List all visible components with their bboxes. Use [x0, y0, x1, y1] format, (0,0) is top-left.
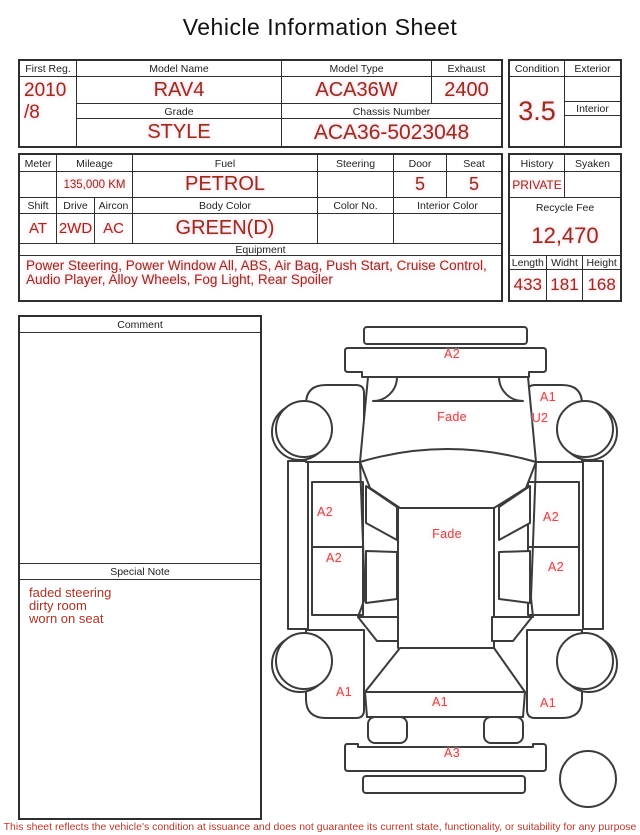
history-box: History Syaken PRIVATE Recycle Fee 12,47…: [508, 153, 622, 302]
body-color-label: Body Color: [133, 198, 318, 214]
comment-value: [20, 333, 260, 563]
history-value: PRIVATE: [510, 172, 565, 198]
exterior-label: Exterior: [565, 61, 620, 77]
tailgate: [365, 692, 525, 717]
mileage-label: Mileage: [57, 155, 133, 172]
seat-value: 5: [447, 172, 501, 198]
drive-value: 2WD: [57, 214, 95, 244]
recycle-fee-label: Recycle Fee: [510, 198, 620, 216]
first-reg-value: 2010 /8: [20, 77, 77, 146]
right-taillight: [484, 717, 523, 743]
condition-box: Condition 3.5 Exterior Interior: [508, 59, 622, 148]
rear-left-wheel: [276, 633, 332, 689]
model-type-label: Model Type: [282, 61, 432, 77]
condition-value: 3.5: [510, 77, 565, 146]
right-doors: [528, 482, 579, 615]
grade-label: Grade: [77, 104, 282, 119]
chassis-number-label: Chassis Number: [282, 104, 501, 119]
first-reg-label: First Reg.: [20, 61, 77, 77]
left-sill: [288, 461, 308, 629]
comment-box: Comment Special Note faded steering dirt…: [18, 315, 262, 820]
front-bumper-strip: [364, 327, 527, 344]
special-note-value: faded steering dirty room worn on seat: [20, 580, 260, 818]
syaken-value: [565, 172, 620, 198]
right-sill: [583, 461, 603, 629]
exhaust-label: Exhaust: [432, 61, 501, 77]
page-title: Vehicle Information Sheet: [0, 14, 640, 41]
meter-value: [20, 172, 57, 198]
dimensions-grid: Length Widht Height 433 181 168: [510, 256, 620, 300]
width-label: Widht: [547, 256, 584, 270]
rear-bumper: [345, 744, 546, 771]
shift-label: Shift: [20, 198, 57, 214]
equipment-label: Equipment: [20, 244, 501, 256]
interior-value: [565, 116, 620, 146]
steering-value: [318, 172, 394, 198]
disclaimer-text: This sheet reflects the vehicle's condit…: [0, 821, 640, 833]
condition-label: Condition: [510, 61, 565, 77]
rear-glass: [365, 648, 525, 692]
fuel-label: Fuel: [133, 155, 318, 172]
width-value: 181: [547, 270, 584, 300]
shift-value: AT: [20, 214, 57, 244]
drive-label: Drive: [57, 198, 95, 214]
body-color-value: GREEN(D): [133, 214, 318, 244]
model-table: First Reg. 2010 /8 Model Name RAV4 Model…: [18, 59, 503, 148]
history-label: History: [510, 155, 565, 172]
length-label: Length: [510, 256, 547, 270]
front-left-wheel: [276, 401, 332, 457]
equipment-value: Power Steering, Power Window All, ABS, A…: [20, 256, 501, 300]
aircon-value: AC: [95, 214, 133, 244]
front-right-wheel: [557, 401, 613, 457]
length-value: 433: [510, 270, 547, 300]
interior-color-label: Interior Color: [394, 198, 501, 214]
comment-label: Comment: [20, 317, 260, 333]
color-no-label: Color No.: [318, 198, 394, 214]
height-value: 168: [583, 270, 620, 300]
chassis-number-value: ACA36-5023048: [282, 119, 501, 146]
left-taillight: [368, 717, 407, 743]
exhaust-value: 2400: [432, 77, 501, 104]
roof: [398, 508, 494, 648]
grade-value: STYLE: [77, 119, 282, 146]
rear-right-wheel: [557, 633, 613, 689]
fuel-value: PETROL: [133, 172, 318, 198]
vehicle-information-sheet: Vehicle Information Sheet First Reg. 201…: [0, 0, 640, 835]
interior-label: Interior: [565, 102, 620, 116]
steering-label: Steering: [318, 155, 394, 172]
aircon-label: Aircon: [95, 198, 133, 214]
car-diagram: [270, 315, 640, 810]
model-name-label: Model Name: [77, 61, 282, 77]
exterior-value: [565, 77, 620, 102]
model-type-value: ACA36W: [282, 77, 432, 104]
seat-label: Seat: [447, 155, 501, 172]
recycle-fee-value: 12,470: [510, 216, 620, 256]
front-bumper: [345, 348, 546, 377]
spec-table: Meter Mileage Fuel Steering Door Seat 13…: [18, 153, 503, 302]
door-label: Door: [394, 155, 447, 172]
special-note-label: Special Note: [20, 563, 260, 580]
rear-bumper-strip: [363, 776, 525, 793]
color-no-value: [318, 214, 394, 244]
syaken-label: Syaken: [565, 155, 620, 172]
mileage-value: 135,000 KM: [57, 172, 133, 198]
model-name-value: RAV4: [77, 77, 282, 104]
left-doors: [312, 482, 363, 615]
spare-wheel: [560, 751, 616, 807]
door-value: 5: [394, 172, 447, 198]
interior-color-value: [394, 214, 501, 244]
height-label: Height: [583, 256, 620, 270]
meter-label: Meter: [20, 155, 57, 172]
